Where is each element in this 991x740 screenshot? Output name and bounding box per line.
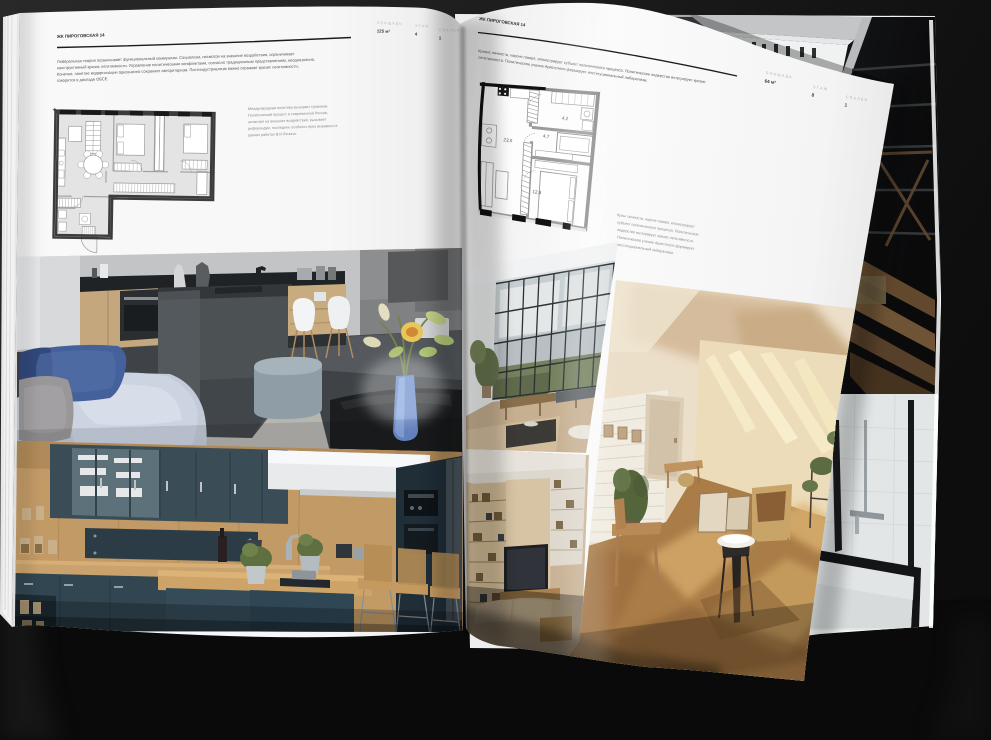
svg-text:4,7: 4,7 — [543, 133, 550, 139]
svg-text:ПЛОЩАДЬ: ПЛОЩАДЬ — [377, 21, 403, 26]
svg-text:125 м²: 125 м² — [377, 28, 391, 33]
svg-text:ЭТАЖ: ЭТАЖ — [415, 24, 430, 28]
